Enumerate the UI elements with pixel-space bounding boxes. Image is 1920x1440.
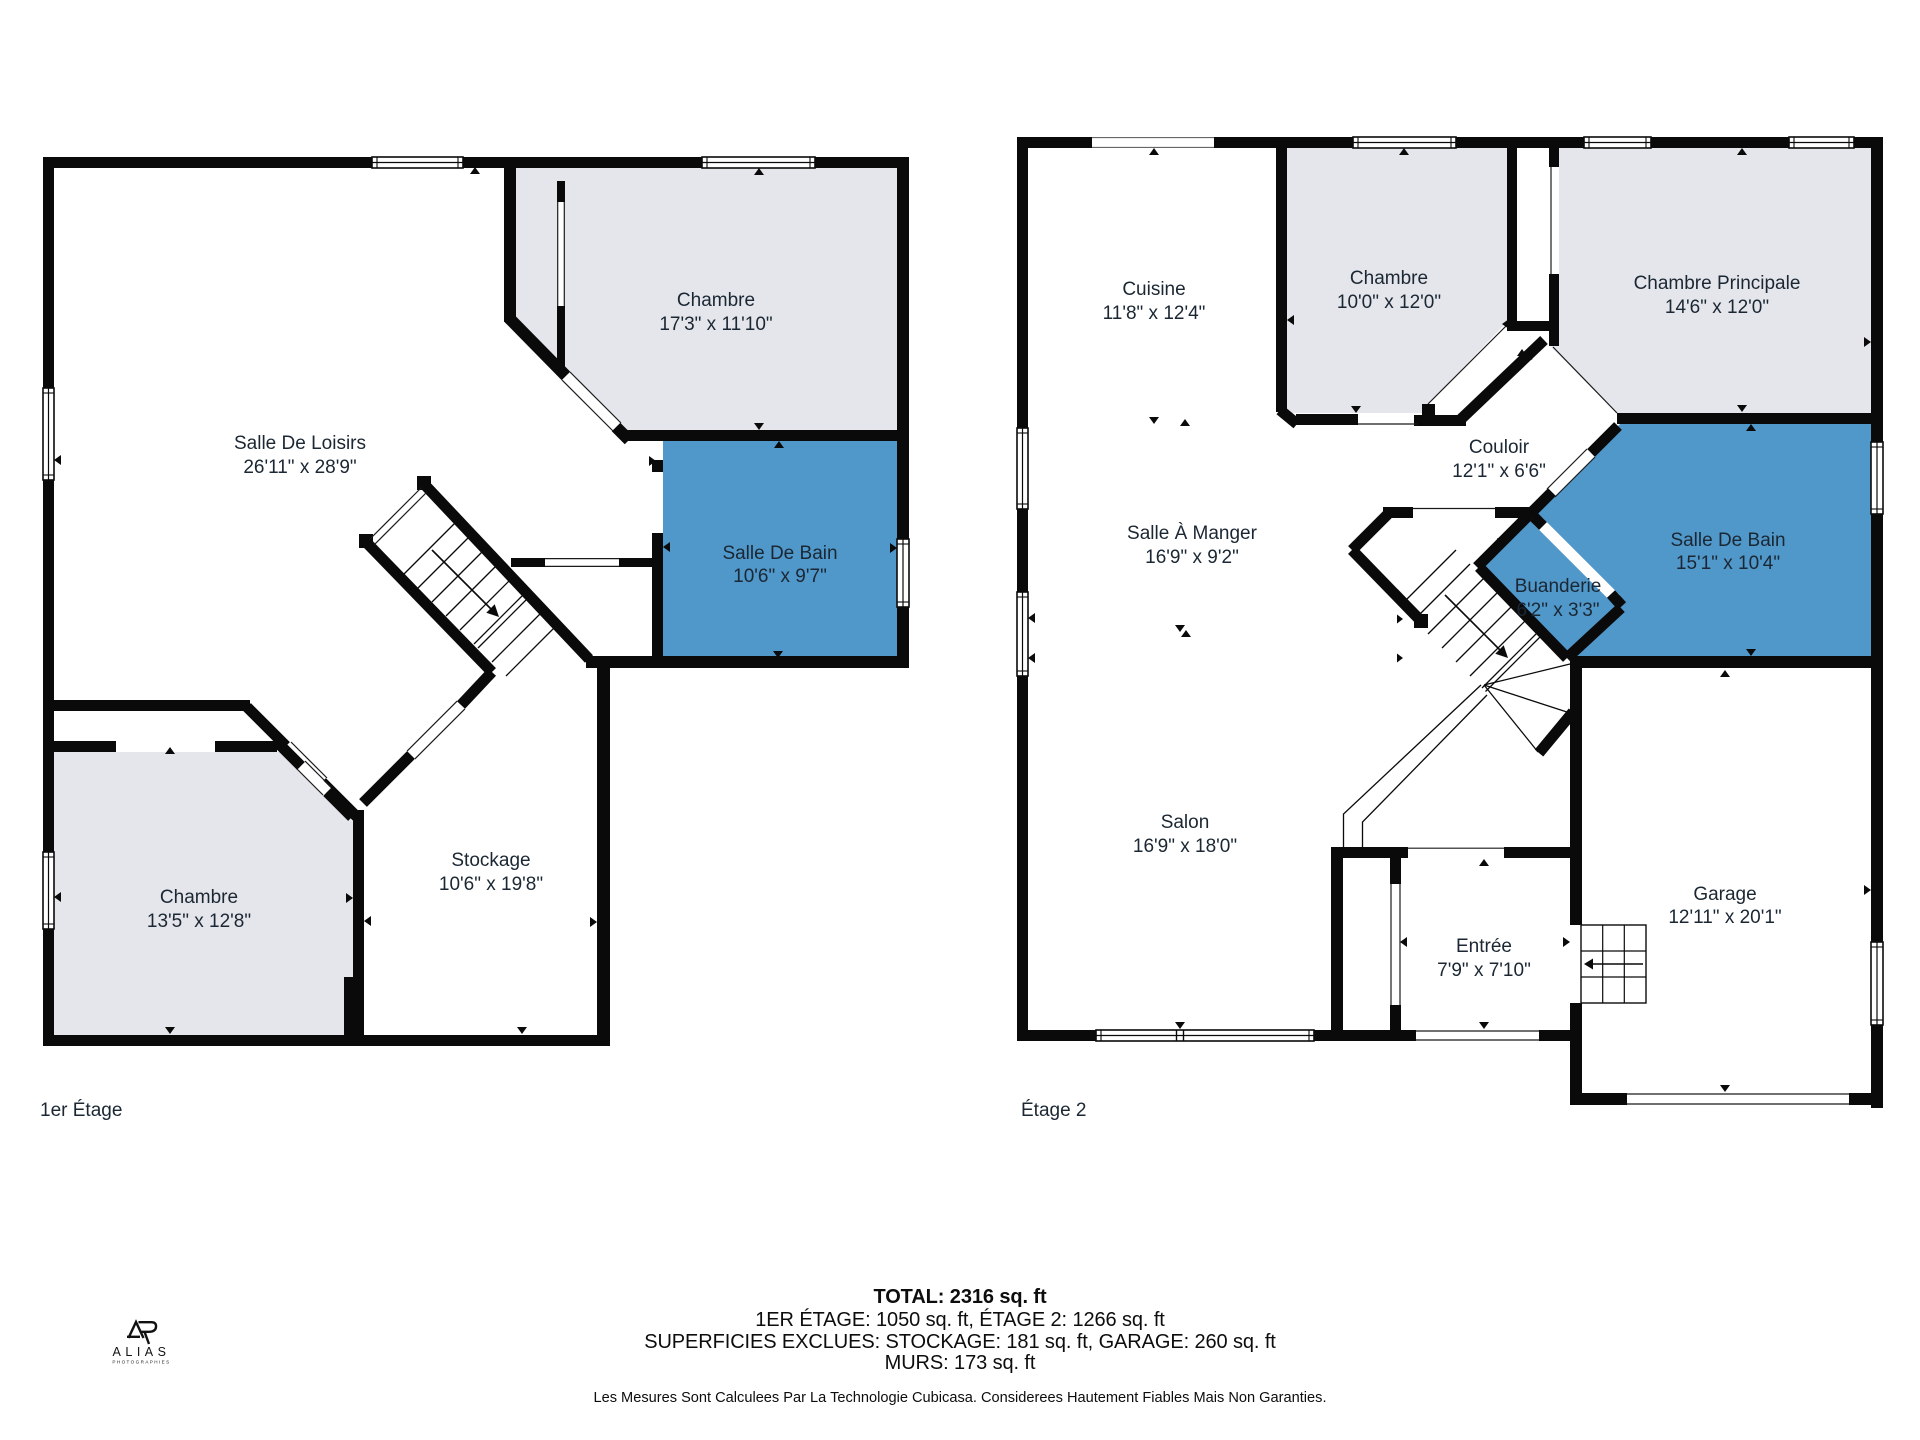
svg-text:10'0" x 12'0": 10'0" x 12'0" — [1337, 292, 1441, 313]
svg-text:ALIAS: ALIAS — [113, 1345, 171, 1359]
svg-text:MURS: 173 sq. ft: MURS: 173 sq. ft — [885, 1352, 1036, 1374]
svg-text:26'11" x 28'9": 26'11" x 28'9" — [243, 457, 356, 478]
svg-text:12'1" x 6'6": 12'1" x 6'6" — [1452, 461, 1546, 482]
svg-text:Les Mesures Sont Calculees Par: Les Mesures Sont Calculees Par La Techno… — [593, 1390, 1326, 1406]
svg-text:Chambre: Chambre — [1350, 268, 1428, 289]
svg-text:PHOTOGRAPHIES: PHOTOGRAPHIES — [112, 1360, 170, 1365]
svg-text:10'6" x 9'7": 10'6" x 9'7" — [733, 566, 827, 587]
svg-text:16'9" x 9'2": 16'9" x 9'2" — [1145, 547, 1239, 568]
svg-text:SUPERFICIES EXCLUES: STOCKAGE:: SUPERFICIES EXCLUES: STOCKAGE: 181 sq. f… — [644, 1331, 1276, 1353]
svg-text:Étage 2: Étage 2 — [1021, 1100, 1087, 1121]
svg-text:TOTAL: 2316 sq. ft: TOTAL: 2316 sq. ft — [873, 1286, 1046, 1308]
svg-text:Chambre: Chambre — [160, 887, 238, 908]
svg-text:14'6" x 12'0": 14'6" x 12'0" — [1665, 297, 1769, 318]
svg-text:Salle De Loisirs: Salle De Loisirs — [234, 433, 366, 454]
svg-text:Couloir: Couloir — [1469, 437, 1530, 458]
svg-text:10'6" x 19'8": 10'6" x 19'8" — [439, 874, 543, 895]
svg-text:1er Étage: 1er Étage — [40, 1100, 122, 1121]
svg-text:Salon: Salon — [1161, 812, 1210, 833]
svg-text:1ER ÉTAGE: 1050 sq. ft, ÉTAGE: 1ER ÉTAGE: 1050 sq. ft, ÉTAGE 2: 1266 sq… — [755, 1308, 1165, 1331]
svg-text:7'9" x 7'10": 7'9" x 7'10" — [1437, 960, 1531, 981]
svg-text:6'2" x 3'3": 6'2" x 3'3" — [1516, 600, 1599, 621]
svg-text:13'5" x 12'8": 13'5" x 12'8" — [147, 911, 251, 932]
svg-text:Entrée: Entrée — [1456, 936, 1512, 957]
svg-text:Salle À Manger: Salle À Manger — [1127, 523, 1258, 544]
svg-text:Garage: Garage — [1693, 884, 1756, 905]
svg-text:Chambre: Chambre — [677, 290, 755, 311]
svg-text:16'9" x 18'0": 16'9" x 18'0" — [1133, 836, 1237, 857]
svg-text:Salle De Bain: Salle De Bain — [722, 543, 837, 564]
svg-text:17'3" x 11'10": 17'3" x 11'10" — [659, 314, 772, 335]
svg-text:Buanderie: Buanderie — [1515, 576, 1602, 597]
svg-text:Salle De Bain: Salle De Bain — [1670, 530, 1785, 551]
svg-text:Stockage: Stockage — [451, 850, 530, 871]
svg-text:15'1" x 10'4": 15'1" x 10'4" — [1676, 553, 1780, 574]
svg-text:Chambre Principale: Chambre Principale — [1634, 273, 1801, 294]
svg-text:12'11" x 20'1": 12'11" x 20'1" — [1668, 907, 1781, 928]
svg-text:11'8" x 12'4": 11'8" x 12'4" — [1103, 303, 1206, 324]
svg-text:Cuisine: Cuisine — [1122, 279, 1185, 300]
